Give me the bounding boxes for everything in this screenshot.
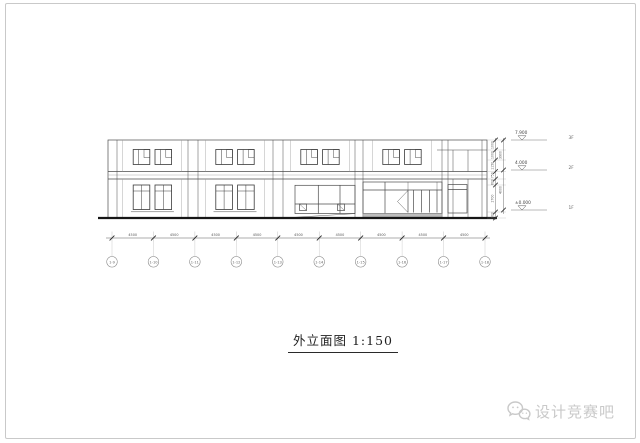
svg-text:2F: 2F: [569, 165, 575, 171]
svg-text:1-18: 1-18: [481, 260, 490, 264]
drawing-title: 外立面图 1:150: [288, 330, 398, 353]
svg-text:4500: 4500: [253, 233, 262, 237]
svg-text:1-17: 1-17: [439, 260, 447, 264]
facade-windows: [131, 150, 421, 212]
svg-text:1000: 1000: [491, 151, 495, 159]
watermark: 设计竞赛吧: [507, 400, 615, 422]
svg-text:4500: 4500: [419, 233, 428, 237]
svg-text:1000: 1000: [491, 141, 495, 149]
svg-text:4500: 4500: [294, 233, 303, 237]
svg-text:1-16: 1-16: [398, 260, 407, 264]
wechat-icon: [507, 400, 531, 422]
svg-text:1-10: 1-10: [149, 260, 158, 264]
svg-text:600: 600: [491, 179, 495, 185]
svg-text:±0.000: ±0.000: [515, 200, 531, 206]
svg-text:1F: 1F: [569, 205, 575, 211]
svg-text:4500: 4500: [460, 233, 469, 237]
svg-text:4500: 4500: [128, 233, 137, 237]
svg-text:1-9: 1-9: [109, 260, 116, 264]
svg-text:2700: 2700: [491, 195, 495, 203]
svg-text:3F: 3F: [569, 135, 575, 141]
ramp-line: [293, 214, 355, 218]
watermark-text: 设计竞赛吧: [535, 401, 615, 422]
right-glazing: [437, 150, 487, 218]
elevation-level-markers: 7.9003F4.0002F±0.0001F: [511, 130, 574, 211]
entrance-doors: [398, 182, 438, 213]
axis-grid-bubbles: 1-91-101-111-121-131-141-151-161-171-18: [107, 242, 491, 268]
svg-text:1-12: 1-12: [232, 260, 240, 264]
cad-elevation-sheet: 450045004500450045004500450045004500 1-9…: [0, 0, 640, 443]
svg-text:1-13: 1-13: [274, 260, 282, 264]
entrance-steps: [363, 214, 442, 218]
svg-text:4500: 4500: [336, 233, 345, 237]
svg-text:600: 600: [491, 212, 495, 218]
svg-text:4.000: 4.000: [515, 160, 528, 166]
svg-text:4500: 4500: [211, 233, 220, 237]
svg-text:1150: 1150: [491, 162, 495, 170]
svg-text:4000: 4000: [499, 186, 503, 194]
svg-text:1-15: 1-15: [357, 260, 365, 264]
vertical-dimension-chain: 100010001150750600270060039004000: [487, 138, 506, 221]
horizontal-dimension-chain: 450045004500450045004500450045004500: [106, 232, 490, 242]
svg-text:750: 750: [491, 172, 495, 178]
svg-text:4500: 4500: [377, 233, 386, 237]
svg-text:7.900: 7.900: [515, 130, 528, 136]
svg-text:4500: 4500: [170, 233, 179, 237]
elevation-drawing-svg: 450045004500450045004500450045004500 1-9…: [0, 0, 640, 443]
svg-text:1-14: 1-14: [315, 260, 324, 264]
svg-text:1-11: 1-11: [191, 260, 199, 264]
storefront-entrance: [293, 182, 467, 217]
svg-text:3900: 3900: [499, 151, 503, 159]
